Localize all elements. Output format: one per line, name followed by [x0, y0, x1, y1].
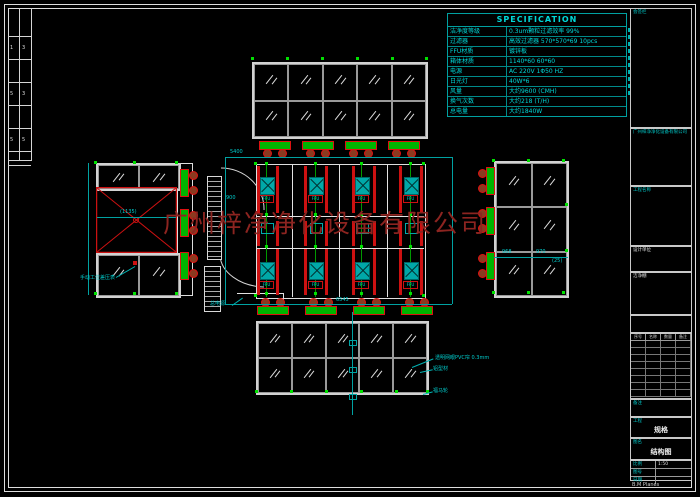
- glass-panel: [323, 101, 357, 138]
- spec-row: FFU材质镀锌板: [448, 47, 626, 57]
- titleblock-text: 备注: [631, 400, 691, 408]
- titleblock-revision-table: 序号 名称 数量 备注: [630, 333, 692, 399]
- glass-panel: [98, 165, 139, 189]
- glass-panel: [532, 163, 568, 207]
- revision-cell: [676, 362, 691, 368]
- glass-panel: [359, 358, 393, 393]
- revision-cell: [676, 341, 691, 347]
- caster-wheel-group: [486, 207, 495, 235]
- green-node: [425, 57, 428, 60]
- revision-cell: [631, 362, 646, 368]
- titleblock-text: 会签栏: [631, 9, 691, 17]
- info-row: 图号: [631, 469, 691, 477]
- glass-panel: [139, 165, 180, 189]
- ffu-fan-unit: [260, 262, 275, 280]
- caster-wheel-group: [257, 306, 289, 315]
- ffu-tag: FFU: [354, 281, 369, 289]
- revision-cell: [661, 348, 676, 354]
- edge-cell: 5 3: [8, 83, 31, 106]
- glass-panel: [258, 323, 292, 358]
- ffu-fan-unit: [260, 177, 275, 195]
- revision-cell: [676, 369, 691, 375]
- spec-row: 换气次数大约218 (T/H): [448, 97, 626, 107]
- revision-cell: [631, 341, 646, 347]
- glass-panel: [496, 163, 532, 207]
- dim-text: 900: [226, 196, 236, 201]
- spec-row: 过滤器高效过滤器 570*570*69 10pcs: [448, 37, 626, 47]
- info-value: 1:50: [656, 461, 691, 468]
- revision-row: [631, 341, 691, 348]
- titleblock-cell-company: 广州梓净净化设备有限公司: [630, 128, 692, 186]
- revision-cell: [631, 383, 646, 389]
- spec-row: 箱体材质1140*60 60*60: [448, 57, 626, 67]
- spec-label: 洁净度等级: [448, 27, 507, 36]
- dim-text: 970: [536, 250, 546, 255]
- edge-cell: [8, 60, 31, 83]
- titleblock-text: 工程名称: [631, 187, 691, 195]
- revision-cell: [661, 383, 676, 389]
- revision-header-cell: 序号: [631, 334, 646, 340]
- green-node: [565, 203, 568, 206]
- titleblock-cell-spec: 工程 规格: [630, 417, 692, 438]
- info-label: 图号: [631, 469, 656, 476]
- revision-cell: [676, 390, 691, 396]
- revision-header-cell: 数量: [661, 334, 676, 340]
- revision-cell: [676, 348, 691, 354]
- titleblock-cell-name: 洁净棚: [630, 272, 692, 315]
- green-node: [409, 162, 412, 165]
- info-value: [656, 469, 691, 476]
- revision-cell: [661, 341, 676, 347]
- green-node: [409, 245, 412, 248]
- titleblock-info-grid: 比例1:50 图号 日期: [630, 460, 692, 481]
- spec-row: 电源AC 220V 1Φ50 HZ: [448, 67, 626, 77]
- green-node: [175, 292, 178, 295]
- glass-panel: [288, 101, 322, 138]
- info-row: 比例1:50: [631, 461, 691, 469]
- glass-panel: [392, 64, 426, 101]
- ffu-tag: FFU: [354, 195, 369, 203]
- spec-value: 大约1840W: [507, 107, 626, 116]
- revision-header: 序号 名称 数量 备注: [631, 334, 691, 341]
- spec-value: 0.3um颗粒过滤效率 99%: [507, 27, 626, 36]
- info-label: 比例: [631, 461, 656, 468]
- ffu-fan-unit: [355, 262, 370, 280]
- red-bar: [399, 249, 402, 295]
- caster-label: 福马轮: [433, 389, 448, 394]
- titleblock-cell-blank: [630, 315, 692, 333]
- revision-cell: [676, 376, 691, 382]
- green-node: [133, 292, 136, 295]
- green-node: [94, 292, 97, 295]
- green-node: [356, 57, 359, 60]
- spec-title: SPECIFICATION: [448, 14, 626, 27]
- glass-panel: [292, 323, 326, 358]
- dim-mark: [349, 367, 357, 373]
- spec-value: AC 220V 1Φ50 HZ: [507, 67, 626, 76]
- bottom-elevation-view: [256, 321, 429, 395]
- revision-cell: [661, 362, 676, 368]
- ffu-fan-unit: [309, 177, 324, 195]
- glass-panel: [254, 101, 288, 138]
- caster-wheel-group: [259, 141, 291, 150]
- glass-panel: [496, 207, 532, 251]
- dim-text: 968: [502, 250, 512, 255]
- green-node: [391, 57, 394, 60]
- green-node: [562, 291, 565, 294]
- red-bar: [420, 249, 423, 295]
- ffu-fan-unit: [404, 262, 419, 280]
- edge-text: 5: [22, 137, 25, 143]
- edge-cell: 5 5: [8, 129, 31, 152]
- green-node: [422, 294, 425, 297]
- power-label: 总电源: [210, 302, 225, 307]
- titleblock-spec-title: 规格: [631, 425, 691, 435]
- dim-text: 6545: [336, 298, 349, 303]
- spec-label: 箱体材质: [448, 57, 507, 66]
- revision-cell: [661, 376, 676, 382]
- green-node: [321, 57, 324, 60]
- cad-sheet: 1 3 5 3 5 5 SPECIFICATION 洁净度等级0.3um颗粒过滤…: [0, 0, 700, 497]
- glass-panel: [254, 64, 288, 101]
- company-watermark: 广州梓净净化设备有限公司: [163, 204, 487, 240]
- caster-wheel-group: [180, 252, 189, 280]
- revision-header-cell: 名称: [646, 334, 661, 340]
- revision-cell: [631, 369, 646, 375]
- green-node: [360, 162, 363, 165]
- ffu-tag: FFU: [308, 281, 323, 289]
- caster-wheel-group: [302, 141, 334, 150]
- ffu-tag: FFU: [259, 281, 274, 289]
- glass-panel: [323, 64, 357, 101]
- glass-panel: [392, 101, 426, 138]
- revision-cell: [631, 348, 646, 354]
- green-node: [562, 159, 565, 162]
- spec-value: 镀锌板: [507, 47, 626, 56]
- titleblock-cell-signoff: 会签栏: [630, 8, 692, 128]
- revision-row: [631, 355, 691, 362]
- revision-row: [631, 376, 691, 383]
- green-node: [325, 390, 328, 393]
- green-node: [360, 390, 363, 393]
- dim-text: (25): [552, 259, 562, 264]
- caster-wheel-group: [305, 306, 337, 315]
- titleblock-text: 设计单位: [631, 247, 691, 255]
- info-value: [656, 477, 691, 484]
- edge-text: 3: [22, 45, 25, 51]
- green-node: [527, 159, 530, 162]
- spec-value: 大约218 (T/H): [507, 97, 626, 106]
- dim-line: [225, 304, 452, 305]
- titleblock-cell-designer: 设计单位: [630, 246, 692, 272]
- glass-panel: [326, 358, 360, 393]
- revision-cell: [661, 355, 676, 361]
- ffu-tag: FFU: [403, 281, 418, 289]
- revision-cell: [646, 369, 661, 375]
- revision-cell: [646, 348, 661, 354]
- spec-label: 换气次数: [448, 97, 507, 106]
- titleblock-cell-remark: 备注: [630, 399, 692, 417]
- revision-header-cell: 备注: [676, 334, 691, 340]
- green-node: [565, 249, 568, 252]
- spec-label: 风量: [448, 87, 507, 96]
- ffu-fan-unit: [404, 177, 419, 195]
- revision-row: [631, 369, 691, 376]
- green-node: [395, 390, 398, 393]
- revision-cell: [646, 376, 661, 382]
- green-node: [175, 161, 178, 164]
- edge-cell: 1 3: [8, 37, 31, 60]
- revision-cell: [646, 390, 661, 396]
- edge-cell: [8, 106, 31, 129]
- green-node: [265, 162, 268, 165]
- profile-label: 铝型材: [433, 367, 448, 372]
- spec-row: 风量大约9600 (CMH): [448, 87, 626, 97]
- glass-panel: [357, 64, 391, 101]
- edge-text: 3: [22, 91, 25, 97]
- caster-wheel-group: [180, 169, 189, 197]
- gauge-label: 手动工位差压表: [80, 276, 115, 281]
- dim-mark: [349, 394, 357, 400]
- spec-label: 日光灯: [448, 77, 507, 86]
- green-node: [133, 161, 136, 164]
- green-node: [422, 162, 425, 165]
- green-node: [492, 159, 495, 162]
- ffu-tag: FFU: [308, 195, 323, 203]
- spec-row: 洁净度等级0.3um颗粒过滤效率 99%: [448, 27, 626, 37]
- drawing-title: 结构图: [631, 447, 691, 457]
- revision-cell: [631, 376, 646, 382]
- revision-cell: [661, 369, 676, 375]
- caster-wheel-group: [401, 306, 433, 315]
- glass-panel: [139, 255, 180, 296]
- spec-value: 40W*6: [507, 77, 626, 86]
- green-node: [314, 245, 317, 248]
- spec-row: 日光灯40W*6: [448, 77, 626, 87]
- glass-panel: [359, 323, 393, 358]
- green-node: [254, 294, 257, 297]
- revision-cell: [646, 362, 661, 368]
- spec-label: 总电量: [448, 107, 507, 116]
- green-node: [290, 390, 293, 393]
- red-bar: [325, 249, 328, 295]
- green-node: [251, 57, 254, 60]
- green-node: [255, 390, 258, 393]
- edge-text: 5: [10, 91, 13, 97]
- edge-cell: [8, 8, 31, 37]
- green-node: [314, 162, 317, 165]
- ffu-fan-unit: [309, 262, 324, 280]
- dim-text: 5400: [230, 150, 243, 155]
- red-bar: [373, 249, 376, 295]
- green-node: [360, 245, 363, 248]
- revision-row: [631, 362, 691, 369]
- glass-panel: [532, 207, 568, 251]
- glass-panel: [258, 358, 292, 393]
- revision-cell: [646, 383, 661, 389]
- spec-label: FFU材质: [448, 47, 507, 56]
- top-elevation-view: [252, 62, 428, 139]
- glass-panel: [292, 358, 326, 393]
- spec-row: 总电量大约1840W: [448, 107, 626, 116]
- glass-panel: [357, 101, 391, 138]
- green-node: [265, 292, 268, 295]
- caster-wheel-group: [486, 167, 495, 195]
- green-node: [286, 57, 289, 60]
- curtain-label: 透明网眼PVC帘 0.3mm: [435, 356, 489, 361]
- dim-mark: [349, 340, 357, 346]
- spec-value: 大约9600 (CMH): [507, 87, 626, 96]
- revision-cell: [661, 390, 676, 396]
- ffu-fan-unit: [355, 177, 370, 195]
- revision-cell: [631, 355, 646, 361]
- glass-panel: [288, 64, 322, 101]
- green-node: [527, 291, 530, 294]
- dim-text: (1135): [120, 210, 137, 215]
- ffu-tag: FFU: [403, 195, 418, 203]
- right-side-view: [494, 161, 569, 298]
- revision-cell: [676, 383, 691, 389]
- revision-cell: [676, 355, 691, 361]
- revision-cell: [646, 355, 661, 361]
- gauge-mark: [133, 261, 137, 265]
- revision-row: [631, 383, 691, 390]
- caster-wheel-group: [388, 141, 420, 150]
- green-node: [94, 161, 97, 164]
- titleblock-cell-drawing-title: 图名 结构图: [630, 438, 692, 460]
- green-node: [360, 292, 363, 295]
- edge-strip: 1 3 5 3 5 5: [8, 8, 32, 161]
- edge-cell: [8, 152, 31, 166]
- revision-rows: [631, 341, 691, 397]
- revision-cell: [646, 341, 661, 347]
- red-bar: [276, 249, 279, 295]
- spec-value: 高效过滤器 570*570*69 10pcs: [507, 37, 626, 46]
- titleblock-text: 洁净棚: [631, 273, 691, 281]
- red-bar: [304, 249, 307, 295]
- green-node: [409, 292, 412, 295]
- ffu-tag: FFU: [259, 195, 274, 203]
- titleblock-text: 广州梓净净化设备有限公司: [631, 129, 691, 137]
- bottom-note: B.M Planes: [632, 482, 659, 488]
- green-node: [265, 245, 268, 248]
- titleblock-label: 图名: [631, 439, 691, 447]
- spec-value: 1140*60 60*60: [507, 57, 626, 66]
- caster-wheel-group: [345, 141, 377, 150]
- edge-text: 1: [10, 45, 13, 51]
- glass-panel: [393, 323, 427, 358]
- spec-label: 电源: [448, 67, 507, 76]
- specification-table: SPECIFICATION 洁净度等级0.3um颗粒过滤效率 99% 过滤器高效…: [447, 13, 627, 117]
- edge-text: 5: [10, 137, 13, 143]
- green-node: [492, 291, 495, 294]
- caster-wheel-group: [353, 306, 385, 315]
- green-node: [254, 162, 257, 165]
- dim-line: [225, 157, 452, 158]
- revision-row: [631, 348, 691, 355]
- revision-cell: [631, 390, 646, 396]
- green-node: [314, 292, 317, 295]
- spec-label: 过滤器: [448, 37, 507, 46]
- titleblock-cell-project: 工程名称: [630, 186, 692, 246]
- glass-panel: [496, 252, 532, 296]
- revision-row: [631, 390, 691, 397]
